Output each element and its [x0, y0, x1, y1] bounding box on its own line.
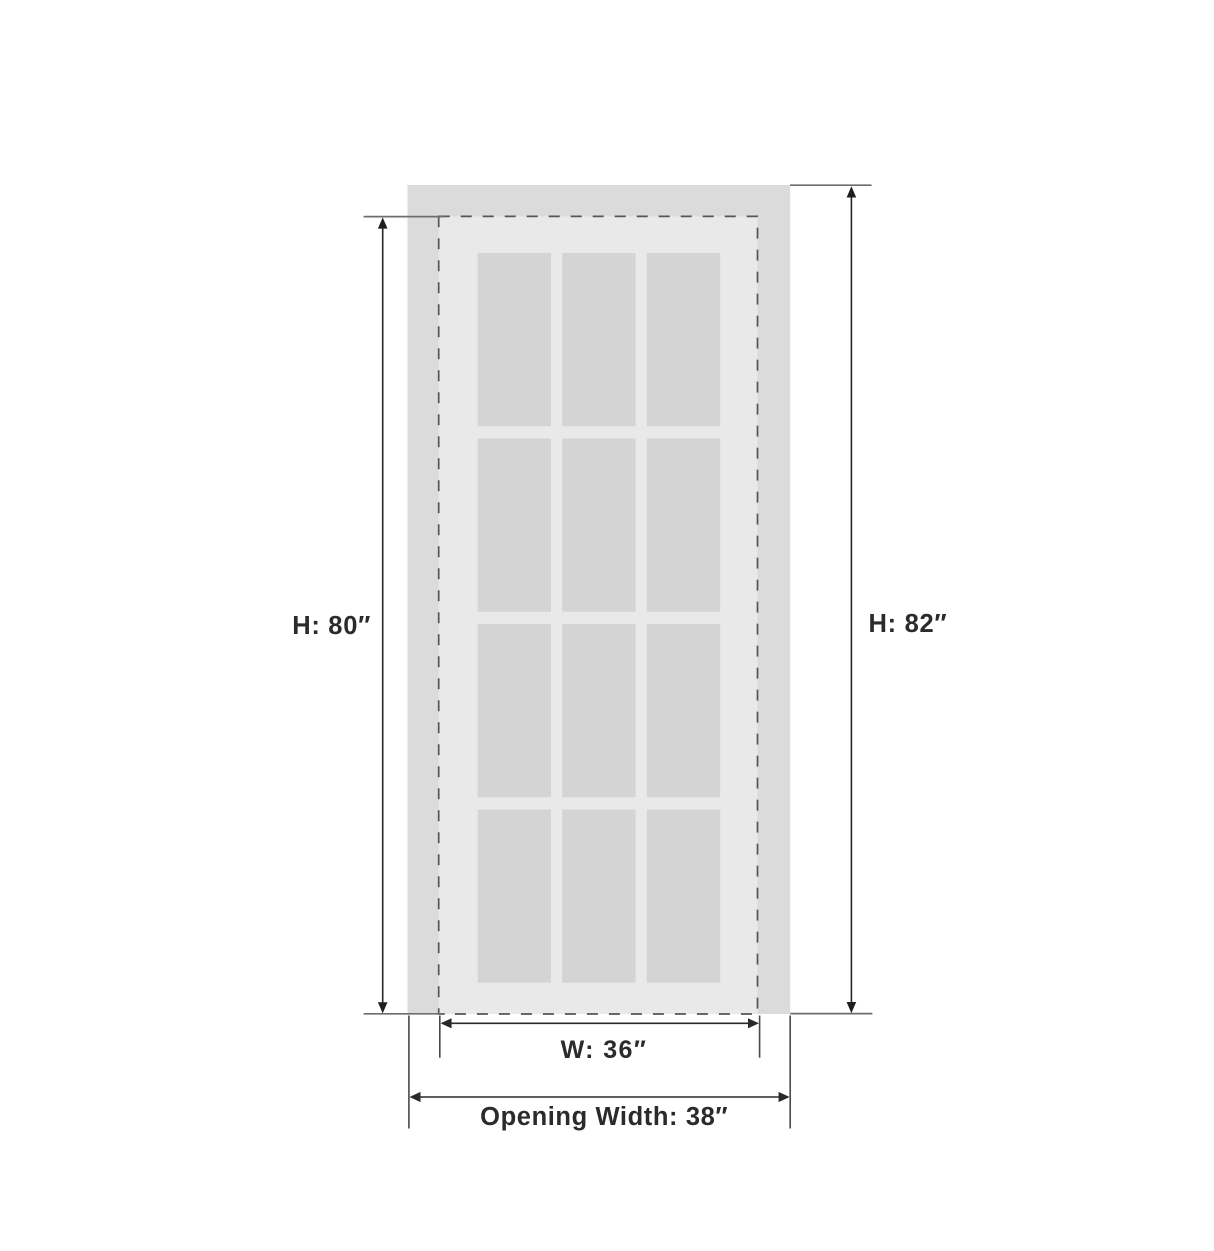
- svg-text:H: 82″: H: 82″: [869, 610, 948, 638]
- svg-text:H: 80″: H: 80″: [292, 612, 371, 640]
- svg-text:W: 36″: W: 36″: [561, 1036, 648, 1064]
- svg-text:Opening Width: 38″: Opening Width: 38″: [480, 1103, 728, 1131]
